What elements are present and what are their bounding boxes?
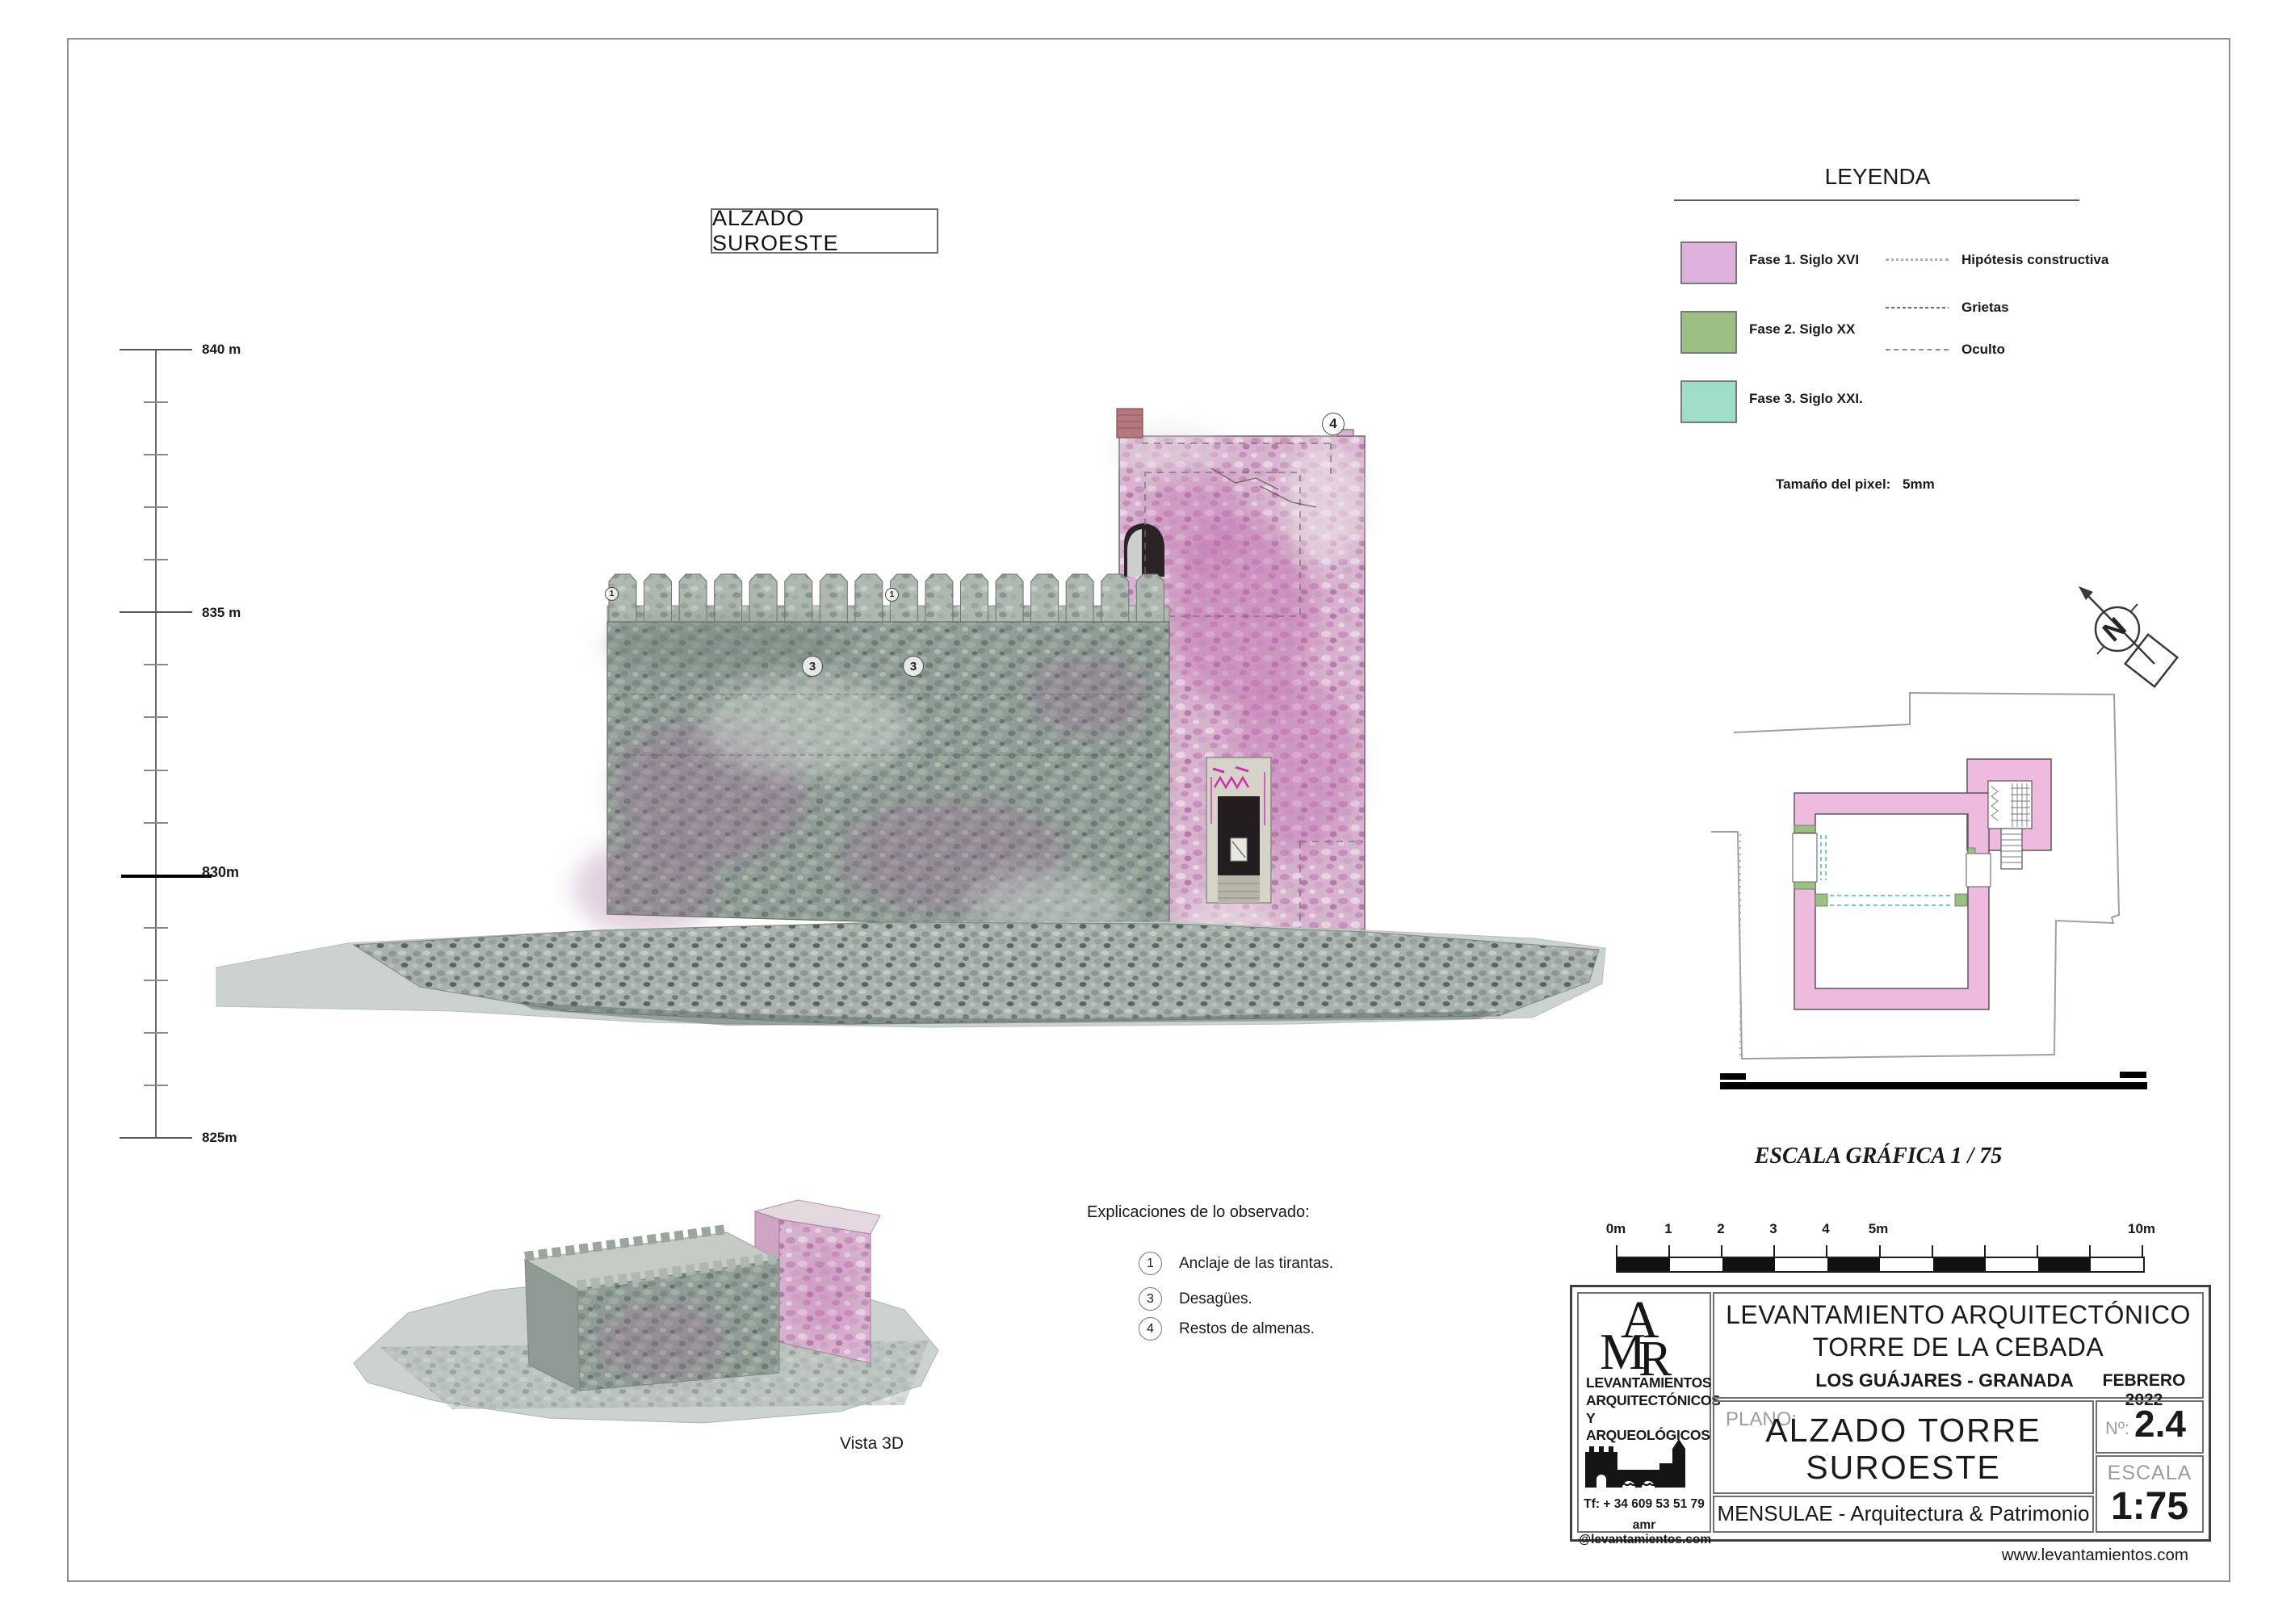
scale-cell: ESCALA 1:75	[2096, 1455, 2204, 1533]
observations-heading: Explicaciones de lo observado:	[1087, 1203, 1310, 1222]
phone: Tf: + 34 609 53 51 79	[1579, 1497, 1710, 1512]
marker-tirantas-1: 1	[605, 587, 619, 601]
elev-label-835: 835 m	[202, 605, 241, 621]
gs-label-2: 2	[1717, 1221, 1724, 1237]
plano-line2: SUROESTE	[1714, 1449, 2092, 1487]
legend-line-grietas	[1886, 307, 1949, 308]
drawing-sheet: N ALZADO SUROESTE LEYENDA Fase	[0, 0, 2295, 1624]
legend-swatch-fase3	[1680, 380, 1737, 423]
sheet-number-cell: Nº: 2.4	[2096, 1400, 2204, 1454]
studio-cell: MENSULAE - Arquitectura & Patrimonio	[1713, 1496, 2094, 1533]
obs-text-4: Restos de almenas.	[1179, 1320, 1315, 1338]
obs-text-3: Desagües.	[1179, 1290, 1252, 1308]
legend-swatch-fase1	[1680, 241, 1737, 284]
gs-label-5m: 5m	[1869, 1221, 1889, 1237]
graphic-scale-title: ESCALA GRÁFICA 1 / 75	[1736, 1144, 2020, 1169]
view-title: ALZADO SUROESTE	[712, 206, 937, 256]
gs-label-4: 4	[1822, 1221, 1829, 1237]
project-title-cell: LEVANTAMIENTO ARQUITECTÓNICO TORRE DE LA…	[1713, 1292, 2204, 1399]
project-location: LOS GUÁJARES - GRANADA	[1811, 1370, 2078, 1391]
legend-line-oculto	[1886, 349, 1949, 350]
gs-label-0m: 0m	[1606, 1221, 1626, 1237]
gs-label-10m: 10m	[2128, 1221, 2155, 1237]
email: amr @levantamientos.com	[1579, 1518, 1710, 1547]
project-title-line1: LEVANTAMIENTO ARQUITECTÓNICO	[1714, 1300, 2202, 1330]
marker-tirantas-2: 1	[885, 588, 899, 602]
obs-num-4: 4	[1139, 1317, 1162, 1341]
obs-text-1: Anclaje de las tirantas.	[1179, 1255, 1333, 1273]
plano-cell: PLANO: ALZADO TORRE SUROESTE	[1713, 1400, 2094, 1494]
elev-label-830: 830m	[202, 864, 239, 881]
plano-line1: ALZADO TORRE	[1714, 1412, 2092, 1450]
legend-label-fase2: Fase 2. Siglo XX	[1749, 321, 1855, 338]
graphic-scale-bar	[1616, 1257, 2145, 1273]
company-line-1: LEVANTAMIENTOS	[1586, 1374, 1711, 1391]
legend-line-hipotesis	[1886, 258, 1949, 261]
elev-label-825: 825m	[202, 1130, 237, 1146]
logo-cell: A M R LEVANTAMIENTOS ARQUITECTÓNICOS Y A…	[1577, 1292, 1711, 1533]
elev-label-840: 840 m	[202, 342, 241, 358]
legend-label-oculto: Oculto	[1961, 342, 2005, 358]
elevation-ground	[216, 922, 1605, 1027]
sheet-number-value: 2.4	[2134, 1402, 2186, 1446]
legend-label-fase1: Fase 1. Siglo XVI	[1749, 252, 1859, 268]
scale-label: ESCALA	[2097, 1462, 2202, 1485]
legend-label-grietas: Grietas	[1961, 300, 2009, 316]
company-line-2: ARQUITECTÓNICOS	[1586, 1392, 1721, 1409]
marker-desague-2: 3	[903, 656, 924, 677]
title-block: A M R LEVANTAMIENTOS ARQUITECTÓNICOS Y A…	[1570, 1285, 2211, 1542]
marker-desague-1: 3	[802, 656, 823, 677]
svg-text:N: N	[2097, 611, 2133, 648]
view-title-box: ALZADO SUROESTE	[711, 208, 938, 254]
legend-title: LEYENDA	[1777, 164, 1978, 190]
scale-value: 1:75	[2097, 1484, 2202, 1529]
pixel-size-label: Tamaño del pixel:	[1776, 476, 1890, 493]
legend-label-fase3: Fase 3. Siglo XXI.	[1749, 391, 1863, 407]
elevation-curtain-wall	[573, 574, 1169, 937]
north-arrow-icon: N	[2079, 586, 2177, 686]
castle-skyline-icon	[1582, 1436, 1705, 1488]
project-title-line2: TORRE DE LA CEBADA	[1714, 1332, 2202, 1362]
plan-view	[1711, 693, 2147, 1089]
obs-num-1: 1	[1139, 1252, 1162, 1275]
legend-swatch-fase2	[1680, 311, 1737, 354]
studio-name: MENSULAE - Arquitectura & Patrimonio	[1714, 1501, 2092, 1526]
marker-restos-almenas: 4	[1322, 413, 1345, 435]
legend-rule	[1674, 199, 2079, 201]
vista-3d-label: Vista 3D	[840, 1434, 904, 1454]
website-url: www.levantamientos.com	[1938, 1546, 2188, 1565]
gs-label-1: 1	[1664, 1221, 1672, 1237]
legend-label-hipotesis: Hipótesis constructiva	[1961, 252, 2108, 268]
vista-3d	[354, 1200, 938, 1423]
obs-num-3: 3	[1139, 1287, 1162, 1311]
gs-label-3: 3	[1769, 1221, 1777, 1237]
pixel-size-value: 5mm	[1903, 476, 1935, 493]
sheet-number-label: Nº:	[2105, 1418, 2129, 1439]
elevation-scale-line	[155, 349, 157, 1138]
